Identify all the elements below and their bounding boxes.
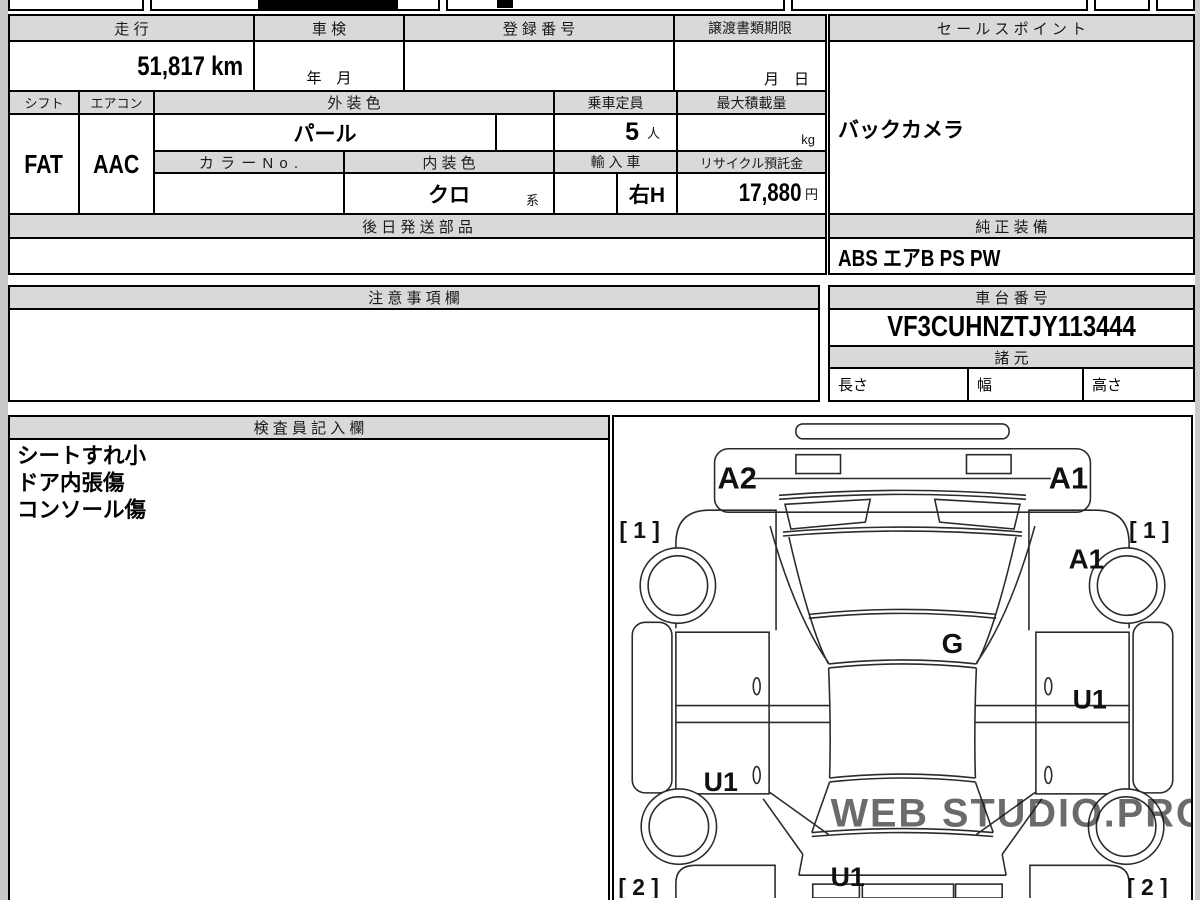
chassis-label: 車 台 番 号 <box>975 287 1048 308</box>
interior-color-value: クロ <box>428 179 470 209</box>
chassis-number: VF3CUHNZTJY113444 <box>887 311 1135 344</box>
color-no-label: カ ラ ー N o . <box>199 152 299 173</box>
spec-width-label: 幅 <box>977 374 992 395</box>
mileage-header: 走 行 <box>8 14 255 42</box>
import-value: 右H <box>629 179 665 209</box>
shift-value: FAT <box>25 149 64 180</box>
exterior-color-value: パール <box>294 118 357 148</box>
specs-header: 諸 元 <box>828 345 1195 369</box>
import-header: 輸 入 車 <box>553 150 678 174</box>
transfer-deadline-value-cell: 月 日 <box>673 40 827 92</box>
cutoff-row-cell <box>1094 0 1150 11</box>
inspection-value-cell: 年 月 <box>253 40 405 92</box>
inspection-header: 車 検 <box>253 14 405 42</box>
damage-code-bumper-right: A1 <box>1049 460 1088 495</box>
import-value-cell: 右H <box>616 172 678 215</box>
damage-code-corner-top-right: [ 1 ] <box>1129 517 1170 543</box>
max-load-value-cell: kg <box>676 113 827 152</box>
cutoff-text-fragment <box>497 0 513 8</box>
max-load-label: 最大積載量 <box>717 93 787 113</box>
color-no-value-cell <box>153 172 345 215</box>
caution-header: 注 意 事 項 欄 <box>8 285 820 310</box>
sales-point-header: セ ー ル ス ポ イ ン ト <box>828 14 1195 42</box>
import-sub-cell <box>553 172 618 215</box>
inspector-body: シートすれ小ドア内張傷コンソール傷 <box>8 438 610 900</box>
cutoff-row-cell <box>791 0 1088 11</box>
genuine-equipment-header: 純 正 装 備 <box>828 213 1195 239</box>
registration-value-cell <box>403 40 675 92</box>
transfer-deadline-header: 譲渡書類期限 <box>673 14 827 42</box>
damage-code-door-left: U1 <box>704 767 738 797</box>
aircon-value: AAC <box>93 149 139 180</box>
right-scan-edge <box>1195 0 1200 900</box>
capacity-value: 5 <box>625 118 639 147</box>
recycle-deposit-value: 17,880 <box>738 179 801 208</box>
spec-length-cell: 長さ <box>828 367 969 402</box>
cutoff-row-cell <box>1156 0 1195 11</box>
spec-width-cell: 幅 <box>967 367 1084 402</box>
damage-code-rear-center: U1 <box>831 862 865 892</box>
cutoff-row-cell <box>8 0 144 11</box>
interior-color-label: 内 装 色 <box>422 152 475 173</box>
inspector-note-lines: シートすれ小ドア内張傷コンソール傷 <box>10 440 608 524</box>
mileage-value: 51,817 km <box>137 51 243 82</box>
transfer-deadline-value: 月 日 <box>764 68 809 89</box>
capacity-unit: 人 <box>647 123 660 142</box>
later-parts-label: 後 日 発 送 部 品 <box>362 216 473 237</box>
aircon-label: エアコン <box>90 93 142 112</box>
shift-value-cell: FAT <box>8 113 80 215</box>
color-no-header: カ ラ ー N o . <box>153 150 345 174</box>
recycle-deposit-label: リサイクル預託金 <box>700 153 803 172</box>
recycle-deposit-value-cell: 17,880円 <box>676 172 827 215</box>
shift-label: シフト <box>24 93 63 112</box>
inspector-note-3: コンソール傷 <box>17 498 146 522</box>
aircon-header: エアコン <box>78 90 155 115</box>
damage-diagram-box: A2 A1 [ 1 ] [ 1 ] A1 G U1 U1 U1 [ 2 ] [ … <box>612 415 1193 900</box>
cutoff-text-fragment <box>258 0 398 9</box>
interior-color-header: 内 装 色 <box>343 150 555 174</box>
inspector-header: 検 査 員 記 入 欄 <box>8 415 610 440</box>
car-top-view-diagram: A2 A1 [ 1 ] [ 1 ] A1 G U1 U1 U1 [ 2 ] [ … <box>614 417 1191 898</box>
max-load-unit: kg <box>801 132 815 147</box>
exterior-color-value-cell: パール <box>153 113 497 152</box>
specs-label: 諸 元 <box>994 347 1028 368</box>
auction-sheet: 走 行 車 検 登 録 番 号 譲渡書類期限 51,817 km 年 月 月 日… <box>0 0 1200 900</box>
inspector-note-1: シートすれ小 <box>17 444 146 468</box>
damage-code-fender-right: A1 <box>1069 544 1104 575</box>
exterior-color-sub-cell <box>495 113 555 152</box>
exterior-color-header: 外 装 色 <box>153 90 555 115</box>
chassis-header: 車 台 番 号 <box>828 285 1195 310</box>
caution-body <box>8 308 820 402</box>
inspector-label: 検 査 員 記 入 欄 <box>254 417 365 438</box>
interior-color-value-cell: クロ系 <box>343 172 555 215</box>
spec-height-label: 高さ <box>1092 374 1122 395</box>
later-parts-header: 後 日 発 送 部 品 <box>8 213 827 239</box>
sales-point-body: バックカメラ <box>828 40 1195 215</box>
caution-label: 注 意 事 項 欄 <box>368 287 460 308</box>
spec-length-label: 長さ <box>838 374 868 395</box>
damage-code-corner-bottom-left: [ 2 ] <box>618 874 659 898</box>
mileage-label: 走 行 <box>114 18 148 39</box>
inspection-label: 車 検 <box>312 18 346 39</box>
damage-code-bumper-left: A2 <box>718 460 757 495</box>
shift-header: シフト <box>8 90 80 115</box>
interior-color-suffix: 系 <box>526 190 539 209</box>
aircon-value-cell: AAC <box>78 113 155 215</box>
recycle-deposit-header: リサイクル預託金 <box>676 150 827 174</box>
damage-code-corner-bottom-right: [ 2 ] <box>1127 874 1168 898</box>
exterior-color-label: 外 装 色 <box>327 92 380 113</box>
max-load-header: 最大積載量 <box>676 90 827 115</box>
spec-height-cell: 高さ <box>1082 367 1195 402</box>
genuine-equipment-label: 純 正 装 備 <box>975 216 1048 237</box>
mileage-value-cell: 51,817 km <box>8 40 255 92</box>
capacity-header: 乗車定員 <box>553 90 678 115</box>
chassis-value-cell: VF3CUHNZTJY113444 <box>828 308 1195 347</box>
recycle-deposit-unit: 円 <box>805 184 818 203</box>
left-scan-edge <box>0 0 8 900</box>
sales-point-value: バックカメラ <box>830 42 1193 144</box>
capacity-value-cell: 5人 <box>553 113 678 152</box>
import-label: 輸 入 車 <box>591 152 641 172</box>
capacity-label: 乗車定員 <box>588 93 644 113</box>
later-parts-value-cell <box>8 237 827 275</box>
inspection-value: 年 月 <box>306 67 351 88</box>
registration-label: 登 録 番 号 <box>503 18 576 39</box>
genuine-equipment-cell: ABS エアB PS PW <box>828 237 1195 275</box>
sales-point-label: セ ー ル ス ポ イ ン ト <box>937 18 1086 39</box>
transfer-deadline-label: 譲渡書類期限 <box>708 18 792 38</box>
inspector-note-2: ドア内張傷 <box>17 471 125 495</box>
watermark-text: WEB STUDIO.PRO <box>831 792 1191 836</box>
registration-header: 登 録 番 号 <box>403 14 675 42</box>
genuine-equipment-value: ABS エアB PS PW <box>838 239 1000 273</box>
damage-code-glass: G <box>942 628 964 659</box>
damage-code-corner-top-left: [ 1 ] <box>619 517 660 543</box>
damage-code-door-right: U1 <box>1073 685 1107 715</box>
